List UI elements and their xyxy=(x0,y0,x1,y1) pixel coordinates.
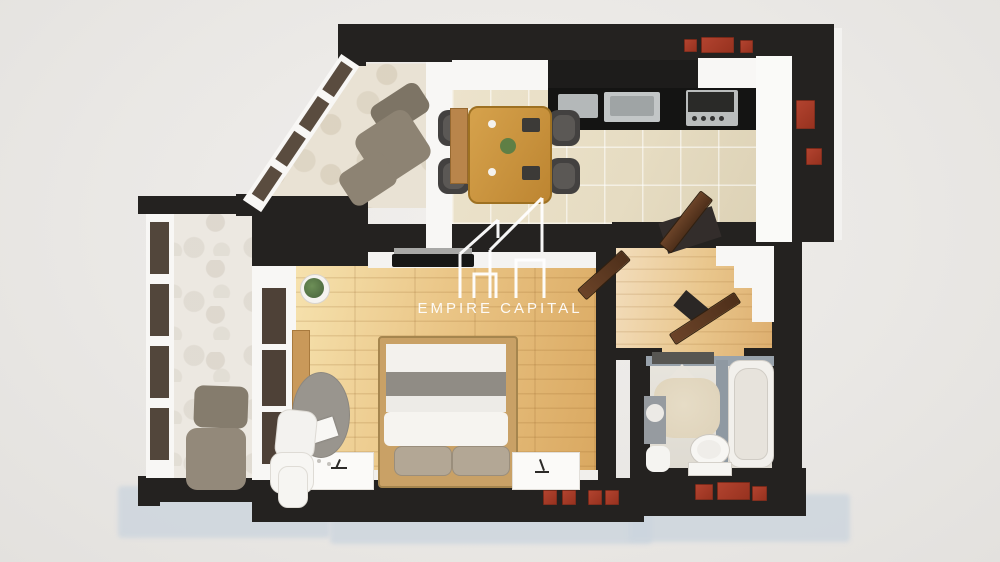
window-pane xyxy=(262,350,286,406)
wardrobe-step-3 xyxy=(752,288,774,322)
kitchen-left-cabinet-face xyxy=(452,60,548,90)
shower-rail xyxy=(652,352,714,364)
nightstand-right xyxy=(512,452,580,490)
kitchen-sink xyxy=(604,92,660,122)
wall-right-outer-face xyxy=(834,28,842,240)
pillow xyxy=(394,446,452,476)
window-pane xyxy=(262,288,286,344)
empire-capital-logo-icon xyxy=(448,194,550,298)
brick-accent xyxy=(740,40,753,53)
potted-plant xyxy=(304,278,324,298)
brick-accent xyxy=(684,39,697,52)
chair-seat xyxy=(553,163,575,189)
brick-accent xyxy=(806,148,822,165)
cup xyxy=(488,120,496,128)
wall-mid-chunk xyxy=(252,196,368,266)
console-bench xyxy=(450,108,468,184)
dining-chair xyxy=(548,158,580,194)
bed-runner xyxy=(386,372,506,396)
brick-accent xyxy=(701,37,734,53)
window-pane xyxy=(150,222,169,274)
window-pane xyxy=(150,346,169,398)
sink-basin xyxy=(610,96,654,116)
placemat xyxy=(522,166,540,180)
brick-accent xyxy=(752,486,767,501)
chair-seat xyxy=(553,115,575,141)
desk-lamp-icon xyxy=(535,471,549,473)
toilet-seat xyxy=(697,440,721,459)
table-plant xyxy=(500,138,516,154)
bed-sheet xyxy=(386,344,506,372)
wall-right-upper xyxy=(792,24,834,242)
bathtub-basin xyxy=(734,368,768,460)
brick-accent xyxy=(543,490,557,505)
window-pane xyxy=(150,408,169,460)
wardrobe-step-1 xyxy=(716,246,774,266)
bed-duvet xyxy=(384,412,508,446)
bathtub xyxy=(728,360,774,468)
lounge-chair-back xyxy=(193,385,248,429)
vanity-basin xyxy=(646,404,664,422)
dining-chair xyxy=(548,110,580,146)
dining-table xyxy=(468,106,552,204)
brick-accent xyxy=(695,484,713,500)
fridge-top xyxy=(698,58,758,92)
window-pane xyxy=(150,284,169,336)
bath-towel xyxy=(646,446,670,472)
entry-corridor xyxy=(756,56,792,242)
wall-bottom-left-step xyxy=(138,476,160,506)
towels xyxy=(278,466,308,508)
watermark-text: EMPIRE CAPITAL xyxy=(408,300,592,317)
bed-sheet xyxy=(386,396,506,412)
wall-right-lower xyxy=(772,242,802,482)
pillow xyxy=(452,446,510,476)
stove-knob xyxy=(692,116,697,121)
brick-accent xyxy=(796,100,815,129)
decor-dot xyxy=(317,459,321,463)
desk-lamp-icon xyxy=(331,467,347,469)
stove-knob xyxy=(719,116,724,121)
brick-accent xyxy=(562,490,576,505)
brick-accent xyxy=(605,490,619,505)
stove xyxy=(686,90,738,126)
cooktop xyxy=(688,92,734,112)
double-bed xyxy=(378,336,518,488)
floorplan-render: EMPIRE CAPITAL xyxy=(0,0,1000,562)
brick-accent xyxy=(717,482,750,500)
lounge-chair-seat xyxy=(186,428,246,490)
cup xyxy=(488,168,496,176)
desk-lamp-icon xyxy=(539,459,545,471)
stove-knob xyxy=(710,116,715,121)
brick-accent xyxy=(588,490,602,505)
wall-balcony-top xyxy=(138,196,260,214)
watermark: EMPIRE CAPITAL xyxy=(408,192,592,320)
decor-dot xyxy=(327,462,331,466)
toilet-tank xyxy=(688,462,732,476)
stove-knob xyxy=(701,116,706,121)
wardrobe-step-2 xyxy=(734,266,774,288)
placemat xyxy=(522,118,540,132)
